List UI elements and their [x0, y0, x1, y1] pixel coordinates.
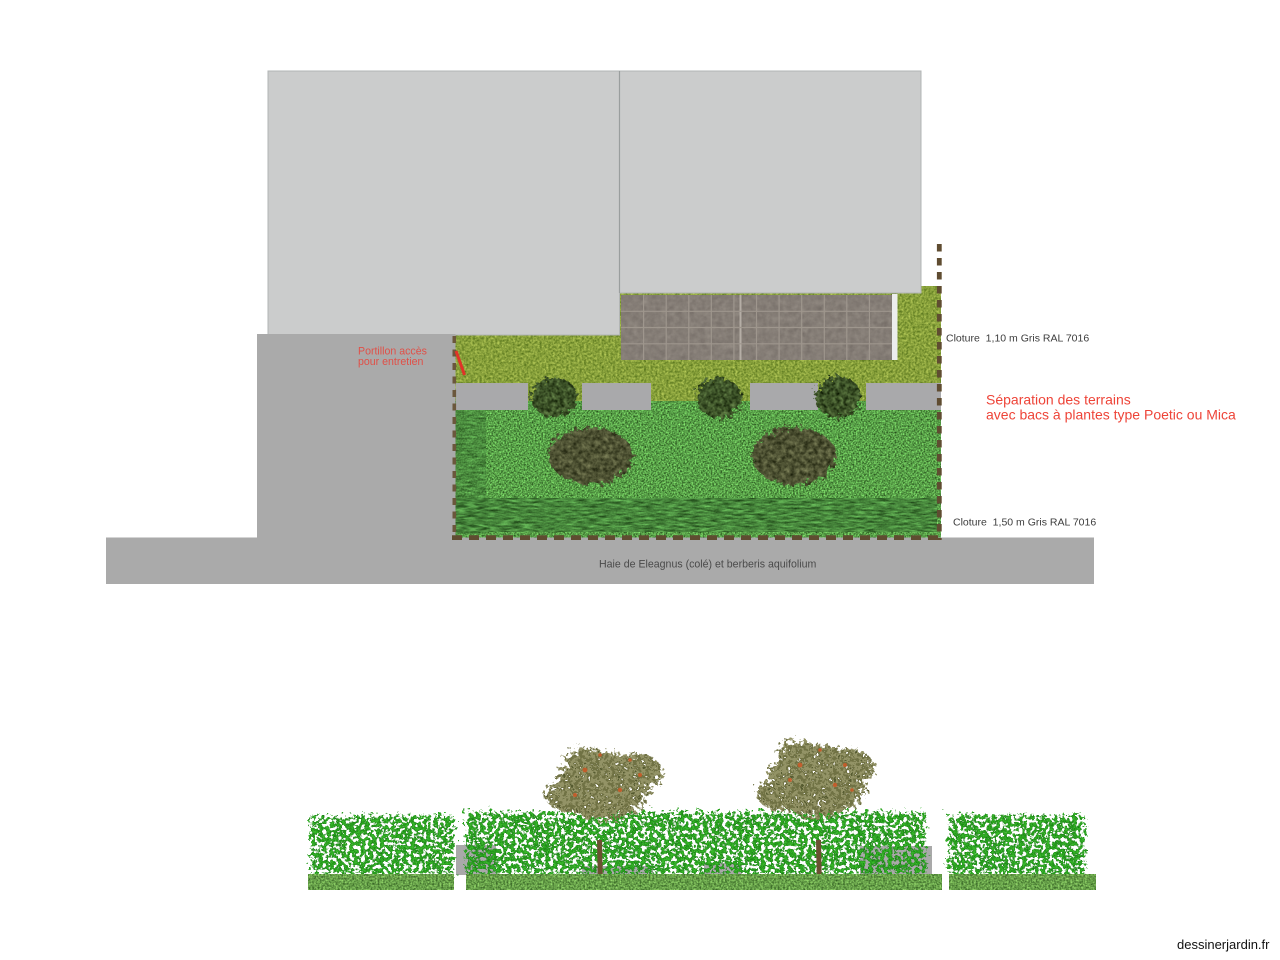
- svg-text:pour entretien: pour entretien: [358, 356, 423, 368]
- svg-text:avec bacs à plantes type Poeti: avec bacs à plantes type Poetic ou Mica: [986, 407, 1236, 423]
- svg-text:Haie de Eleagnus (colé) et ber: Haie de Eleagnus (colé) et berberis aqui…: [599, 559, 816, 571]
- svg-text:dessinerjardin.fr: dessinerjardin.fr: [1177, 937, 1270, 952]
- svg-text:Cloture 1,50 m Gris RAL 7016: Cloture 1,50 m Gris RAL 7016: [953, 517, 1096, 529]
- svg-text:Cloture 1,10 m Gris RAL 7016: Cloture 1,10 m Gris RAL 7016: [946, 333, 1089, 345]
- svg-text:Séparation des terrains: Séparation des terrains: [986, 392, 1131, 408]
